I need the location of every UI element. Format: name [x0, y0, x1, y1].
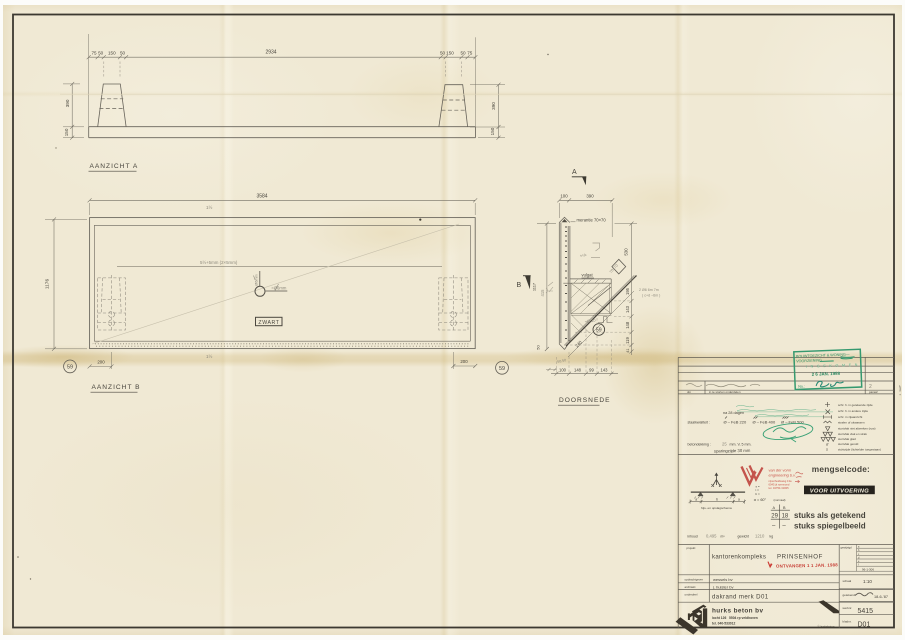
svg-text:5415: 5415 [858, 608, 874, 615]
svg-text:(normaal): (normaal) [774, 498, 786, 502]
svg-text:50: 50 [120, 51, 126, 56]
svg-text:onderdeel: onderdeel [685, 593, 698, 597]
svg-text:a: a [738, 498, 740, 502]
svg-text:415: 415 [540, 289, 545, 297]
svg-text:a: a [695, 498, 697, 502]
svg-text:B: B [517, 282, 522, 289]
svg-text:( c+d ~6m ): ( c+d ~6m ) [642, 294, 660, 298]
svg-text:gewicht: gewicht [738, 535, 750, 539]
svg-text:tel. 04750-31845: tel. 04750-31845 [769, 486, 790, 490]
svg-text:projekt:: projekt: [687, 546, 697, 550]
svg-text:gewijzigd: gewijzigd [841, 546, 853, 550]
svg-text:59: 59 [67, 365, 73, 371]
svg-text:143: 143 [625, 305, 630, 313]
svg-text:200: 200 [97, 360, 105, 365]
svg-text:stortvlak gerold: stortvlak gerold [838, 442, 859, 446]
svg-text:0,495: 0,495 [706, 534, 717, 539]
svg-text:50: 50 [440, 51, 446, 56]
svg-text:–: – [772, 523, 776, 529]
svg-text:390: 390 [65, 99, 70, 107]
svg-text:j. hulster bv: j. hulster bv [712, 584, 733, 589]
svg-text:2934: 2934 [265, 49, 276, 55]
svg-text:99: 99 [589, 367, 594, 372]
svg-text:1½: 1½ [206, 204, 213, 210]
svg-text:nijverheidsweg 13a: nijverheidsweg 13a [769, 479, 793, 483]
svg-text:VOOR UITVOERING: VOOR UITVOERING [810, 489, 869, 495]
svg-text:m³: m³ [721, 535, 726, 539]
svg-text:tel. 040-533012: tel. 040-533012 [712, 621, 735, 625]
svg-text:ZWART: ZWART [258, 320, 279, 326]
svg-text:A: A [773, 506, 776, 510]
svg-text:paraaf: paraaf [869, 390, 878, 394]
svg-text:148: 148 [625, 321, 630, 329]
svg-text:–: – [782, 523, 786, 529]
svg-text:195: 195 [625, 287, 630, 295]
svg-text:B: B [783, 506, 786, 510]
svg-text:dm: dm [687, 390, 692, 394]
svg-text:150: 150 [64, 128, 69, 136]
svg-text:6045 jk roermond: 6045 jk roermond [769, 483, 790, 487]
svg-text:100: 100 [560, 194, 568, 199]
svg-text:ONTVANGEN 1 1 JAN. 1988: ONTVANGEN 1 1 JAN. 1988 [776, 562, 838, 568]
svg-text:schr. in zijaanzicht: schr. in zijaanzicht [838, 415, 863, 419]
svg-text:1117: 1117 [532, 282, 537, 291]
svg-text:vulgat: vulgat [582, 273, 594, 278]
svg-text:wessels bv: wessels bv [713, 577, 733, 582]
svg-text:2 6 JAN. 1988: 2 6 JAN. 1988 [812, 371, 841, 377]
svg-text:41: 41 [626, 348, 630, 352]
svg-text:AANZICHT A: AANZICHT A [90, 163, 139, 170]
svg-text:stuks spiegelbeeld: stuks spiegelbeeld [794, 521, 866, 530]
svg-text:75: 75 [91, 51, 97, 56]
svg-text:s: s [826, 447, 828, 452]
svg-text:≈Ø 10: ≈Ø 10 [584, 317, 596, 324]
svg-text:A: A [572, 169, 577, 176]
svg-text:D01: D01 [858, 622, 871, 629]
svg-text:119: 119 [625, 336, 630, 343]
svg-text:200: 200 [460, 359, 468, 364]
svg-text:2 Ø6 6m 7m: 2 Ø6 6m 7m [639, 288, 659, 292]
svg-text:390: 390 [491, 102, 496, 110]
svg-text:staalkwaliteit :: staalkwaliteit : [688, 421, 710, 425]
svg-text:stortvlak glad: stortvlak glad [838, 437, 856, 441]
svg-text:75: 75 [467, 51, 473, 56]
svg-text:143: 143 [601, 367, 609, 372]
svg-text:hurks beton bv: hurks beton bv [712, 607, 763, 614]
svg-text:Ø – FeB 400: Ø – FeB 400 [753, 420, 776, 425]
svg-text:50: 50 [536, 345, 541, 350]
svg-text:1½: 1½ [206, 353, 213, 359]
svg-text:18-6-’87: 18-6-’87 [874, 595, 888, 599]
svg-text:stortvlak niet afwerken (ruw): stortvlak niet afwerken (ruw) [838, 427, 876, 431]
svg-text:mm. V, 5 mm.: mm. V, 5 mm. [730, 443, 752, 447]
svg-text:schaal: schaal [843, 579, 852, 583]
svg-text:50,50: 50,50 [557, 358, 567, 364]
svg-text:50: 50 [98, 51, 104, 56]
svg-text:29: 29 [771, 514, 778, 520]
svg-text:kg: kg [770, 535, 774, 539]
svg-text:stortvlak vlak en strak: stortvlak vlak en strak [838, 432, 867, 436]
svg-text:≈¹/⁵: ≈¹/⁵ [580, 253, 587, 258]
svg-text:148: 148 [574, 367, 582, 372]
svg-text:getekend: getekend [843, 593, 856, 597]
svg-text:No.:: No.: [798, 385, 805, 389]
svg-text:96-1-306: 96-1-306 [862, 567, 874, 571]
svg-text:inhoud: inhoud [688, 535, 698, 539]
svg-text:240: 240 [574, 339, 583, 348]
svg-text:2: 2 [869, 384, 872, 390]
svg-text:50: 50 [460, 51, 466, 56]
svg-text:zichtzijde (lichtelder toegest: zichtzijde (lichtelder toegestaan) [838, 447, 881, 451]
svg-text:150: 150 [108, 51, 116, 56]
svg-text:25: 25 [722, 442, 727, 447]
svg-text:hijs- en opslagschema: hijs- en opslagschema [701, 506, 732, 510]
svg-text:ⓒ hurksbeton: ⓒ hurksbeton [817, 625, 835, 629]
svg-text:mengselcode:: mengselcode: [812, 464, 870, 474]
svg-text:59: 59 [499, 366, 505, 372]
svg-text:sparingzijde 30 mm: sparingzijde 30 mm [714, 448, 751, 454]
svg-text:3584: 3584 [256, 194, 267, 200]
svg-text:1:10: 1:10 [863, 579, 872, 584]
svg-text:390: 390 [586, 194, 594, 199]
svg-text:18: 18 [782, 514, 789, 520]
svg-text:≈Ø6mm: ≈Ø6mm [272, 286, 287, 291]
svg-text:VOORZIENING: VOORZIENING [796, 358, 822, 363]
svg-text:DOORSNEDE: DOORSNEDE [559, 397, 611, 404]
svg-text:Ø6mm: Ø6mm [254, 274, 258, 285]
svg-text:na 28 dagen: na 28 dagen [723, 411, 744, 415]
svg-text:1176: 1176 [45, 279, 51, 290]
svg-text:AANZICHT B: AANZICHT B [92, 384, 141, 391]
svg-text:59: 59 [596, 328, 602, 334]
svg-text:I N G E K O M E N: I N G E K O M E N [806, 363, 859, 369]
svg-text:betondekking :: betondekking : [688, 443, 711, 447]
svg-text:150: 150 [446, 51, 454, 56]
svg-text:kantorenkompleks: kantorenkompleks [712, 554, 766, 561]
svg-text:530: 530 [623, 248, 628, 256]
svg-text:α = 60°: α = 60° [754, 498, 767, 502]
svg-text:werknr.: werknr. [843, 606, 853, 610]
svg-text:Ø – FeB 220: Ø – FeB 220 [724, 420, 747, 425]
svg-text:150: 150 [490, 127, 495, 135]
svg-text:5½+5mm (2×5mm): 5½+5mm (2×5mm) [200, 260, 238, 265]
svg-text:in te storten onderdelen: in te storten onderdelen [709, 390, 741, 394]
svg-text:architekt: architekt [685, 585, 696, 589]
svg-text:bladnr.: bladnr. [843, 620, 852, 624]
svg-text:engineering b.v.: engineering b.v. [769, 473, 797, 478]
svg-text:1210: 1210 [755, 534, 765, 539]
svg-text:100: 100 [559, 367, 567, 372]
svg-text:dakrand merk D01: dakrand merk D01 [712, 594, 769, 601]
svg-text:schr. h. in getekende zijde: schr. h. in getekende zijde [838, 403, 873, 407]
svg-text:b: b [716, 498, 718, 502]
svg-text:merantie 70×70: merantie 70×70 [577, 217, 607, 222]
svg-text:PRINSENHOF: PRINSENHOF [777, 554, 823, 561]
svg-text:opdrachtgever: opdrachtgever [685, 578, 704, 582]
svg-text:stralen of uitwassen: stralen of uitwassen [838, 421, 865, 425]
svg-text:b =: b = [756, 492, 761, 496]
svg-text:schr. h. in andere zijde: schr. h. in andere zijde [838, 409, 868, 413]
svg-text:stuks als getekend: stuks als getekend [794, 511, 866, 520]
svg-text:locht 126 5504 rp veldhoven: locht 126 5504 rp veldhoven [712, 616, 758, 620]
